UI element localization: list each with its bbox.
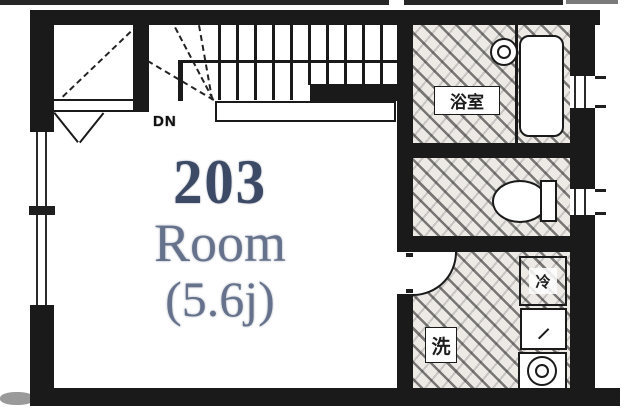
left-window-upper-symbol bbox=[30, 132, 54, 206]
bathroom-window-tick-bottom bbox=[595, 105, 606, 108]
fridge-space-symbol: 冷 bbox=[519, 256, 567, 306]
top-crop-strip-right bbox=[404, 0, 563, 5]
stairs-down-label: DN bbox=[153, 113, 177, 130]
left-window-divider bbox=[29, 206, 55, 215]
bath-toilet-wall bbox=[413, 143, 570, 158]
bathroom-window-tick-top bbox=[595, 76, 606, 79]
washing-machine-drum-inner-symbol bbox=[535, 364, 549, 378]
wall-left-upper bbox=[30, 10, 54, 132]
stair-rail bbox=[180, 60, 397, 63]
toilet-window-tick-bottom bbox=[595, 212, 606, 215]
room-area: (5.6j) bbox=[60, 272, 380, 327]
left-window-lower-symbol bbox=[30, 215, 54, 305]
room-name: Room bbox=[60, 214, 380, 272]
room-number: 203 bbox=[73, 150, 367, 214]
toilet-window-tick-top bbox=[595, 189, 606, 192]
bathtub-symbol bbox=[519, 35, 564, 137]
closet-threshold bbox=[54, 99, 133, 112]
doorframe-tick-top bbox=[406, 253, 413, 257]
bathroom-window-symbol bbox=[568, 76, 595, 108]
top-crop-strip-far-right bbox=[566, 0, 618, 4]
bottom-left-crop-blob bbox=[0, 392, 34, 405]
toilet-tank-symbol bbox=[540, 180, 557, 222]
divider-wall-upper bbox=[397, 25, 413, 252]
top-crop-strip-left bbox=[0, 0, 389, 5]
bathroom-partition bbox=[515, 25, 518, 143]
wall-bottom bbox=[30, 388, 620, 406]
bathroom-label: 浴室 bbox=[434, 86, 500, 115]
toilet-wash-wall bbox=[413, 236, 570, 252]
closet bbox=[54, 25, 133, 100]
closet-door-fold-left bbox=[53, 112, 78, 143]
stair-bottom-landing bbox=[215, 101, 396, 122]
divider-wall-lower bbox=[397, 294, 413, 390]
toilet-window-symbol bbox=[568, 189, 595, 215]
under-stair-wall bbox=[310, 84, 397, 101]
room-203-text: 203 Room (5.6j) bbox=[60, 150, 380, 327]
bath-stool-inner-symbol bbox=[497, 45, 511, 59]
doorframe-tick-bottom bbox=[406, 289, 413, 293]
closet-right-wall bbox=[133, 25, 149, 112]
wall-top bbox=[30, 10, 600, 25]
wall-left-lower bbox=[30, 305, 54, 396]
washstand-label: 洗 bbox=[425, 327, 457, 363]
floor-plan: DN 203 Room (5.6j) 浴室 洗 冷 bbox=[0, 0, 627, 409]
counter-symbol bbox=[520, 308, 567, 350]
closet-door-fold-right bbox=[79, 112, 104, 143]
fridge-label: 冷 bbox=[529, 268, 557, 294]
